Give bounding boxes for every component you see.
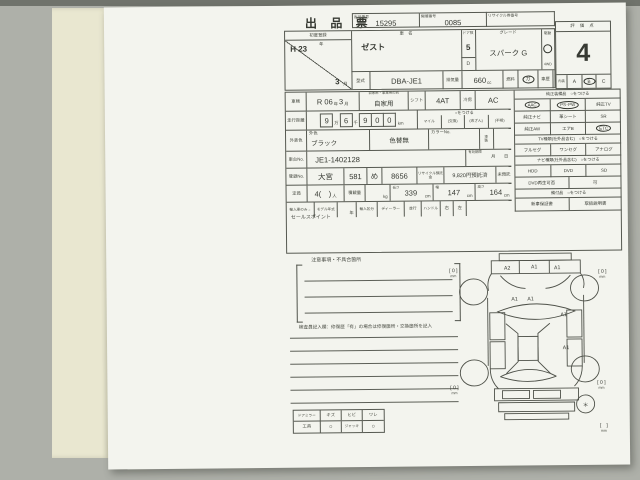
mirror-tools-table: ドアミラー キズ ヒビ ワレ 工具 ○ ジャッキ ○: [293, 409, 385, 434]
color-change-value: 色替無: [370, 129, 429, 150]
owner-manual: 取扱説明書: [569, 198, 622, 211]
registration-label: 登録No.: [286, 169, 307, 185]
color-row: 外装色 外色 ブラック 色替無 カラーNo. 塗装: [286, 129, 511, 152]
session-number-value: 0085: [420, 18, 486, 28]
interior-grade-row: 内装 A B C: [556, 74, 610, 89]
drive-cell: 駆動 4WD: [541, 29, 554, 69]
tire-rear-right: [571, 356, 599, 382]
capacity-label: 定員: [287, 186, 308, 202]
chassis-value: JE1-1402128: [307, 150, 466, 168]
crack-circle-mark: ○: [363, 421, 384, 432]
cooling-value: AC: [476, 91, 511, 109]
drive-label: 駆動: [541, 29, 554, 37]
tv-type-row: フルセグ ワンセグ アナログ: [515, 144, 621, 157]
fuel-value: ガ: [518, 70, 538, 88]
auction-form: 出 品 票 出品番号 15295 開催番号 0085 リサイクル券番号: [281, 9, 625, 464]
mirror-value-row: 工具 ○ ジャッキ ○: [294, 421, 384, 433]
shift-value: 4AT: [426, 91, 461, 109]
recycle-label: リサイクル預託金: [417, 167, 444, 183]
color-no-cell: カラーNo.: [429, 129, 480, 149]
chassis-row: 車台No. JE1-1402128 有効期限 月 日: [286, 150, 511, 169]
mirror-header-row: ドアミラー キズ ヒビ ワレ: [294, 410, 384, 422]
history-value: [553, 70, 554, 88]
car-name-cell: 車 名 ゼスト: [351, 30, 462, 71]
sales-point-row: セールスポイント: [287, 210, 621, 253]
interior-label: 内装: [556, 75, 567, 88]
score-box: 評 価 点 4 内装 A B C: [555, 21, 612, 90]
equip-etc-circled: ETC: [596, 125, 611, 132]
model-label: 型式: [351, 72, 370, 90]
side-page-edge: [52, 8, 110, 458]
displacement-value: 660 cc: [462, 71, 503, 89]
damage-mark: A2: [504, 266, 511, 272]
lot-number-label: 出品番号: [354, 14, 369, 19]
interior-grade-c: C: [597, 75, 611, 88]
inspector-line-4: [290, 375, 458, 378]
load-value: kg: [366, 185, 391, 201]
inspector-line-5: [290, 388, 458, 391]
score-label: 評 価 点: [556, 22, 610, 33]
equipment-row-3: 純正AW エアB ETC: [515, 123, 621, 136]
load-label: 積載量: [345, 185, 366, 201]
color-label: 外装色: [286, 131, 307, 151]
shift-label: シフト: [409, 91, 426, 109]
first-registration-cell: 初度登録 H 23 年 3 月: [285, 31, 353, 90]
drive-value: 4WD: [541, 60, 554, 69]
mileage-mark-cell: ○をつける マイル (交換) (改ざん) (不明): [418, 110, 511, 129]
chassis-expiry-cell: 有効期限 月 日: [466, 150, 511, 166]
equip-aac-circled: AAC: [525, 101, 540, 108]
recycle-value: 9,820円預託済: [444, 167, 496, 183]
door-front-left: [490, 313, 505, 340]
lot-number-box: 出品番号 15295: [352, 12, 420, 28]
tire-front-left: [459, 279, 487, 305]
drive-circle-icon: [541, 37, 554, 60]
damage-mark: A1: [531, 264, 538, 270]
shaken-label: 車検: [286, 93, 307, 111]
notes-label: 注意事項・不具合箇所: [311, 257, 361, 263]
notes-line-1: [304, 279, 452, 281]
damage-mark: A1: [563, 345, 570, 351]
details-table: 車検 R 06 年 3 月 自家用・事業用の別 自家用 シフト 4AT: [285, 89, 623, 254]
interior-grade-b: B: [582, 75, 597, 88]
session-number-label: 開催番号: [421, 14, 436, 19]
details-left: 車検 R 06 年 3 月 自家用・事業用の別 自家用 シフト 4AT: [286, 91, 512, 213]
tread-rear-right: [ 0 ] mm: [593, 380, 609, 390]
vehicle-summary-table: 初度登録 H 23 年 3 月 車 名 ゼスト ドア数 5: [284, 28, 556, 91]
interior-grade-a: A: [567, 75, 582, 88]
inspector-line-2: [290, 349, 458, 352]
equip-leather: 革シート: [550, 111, 586, 123]
dvd-value: 可: [569, 177, 622, 190]
usage-value: 自家用: [360, 96, 408, 111]
grade-value: スパーク G: [475, 36, 541, 70]
history-label: 車歴: [538, 70, 553, 88]
recycle-ticket-box: リサイクル券番号: [487, 11, 555, 27]
door-front-right: [567, 310, 582, 337]
door-count-value: 5: [461, 37, 475, 58]
color-value: ブラック: [307, 136, 369, 148]
paint-label: 塗装: [480, 129, 494, 149]
length-cell: 長さ 339 cm: [391, 184, 434, 200]
tread-front-right: [ 0 ] mm: [594, 269, 610, 279]
bracket-left: [296, 265, 303, 323]
color-no-label: カラーNo.: [429, 129, 479, 135]
capacity-row: 定員 4( ) 人 積載量 kg 長さ 339 cm: [287, 184, 512, 203]
model-row: 型式 DBA-JE1 排気量 660 cc 燃料 ガ 車歴: [351, 69, 554, 90]
color-cell: 外色 ブラック: [307, 130, 370, 151]
registration-number: 8656: [382, 168, 417, 184]
equipment-row-1: AAC PS･PW 純正TV: [515, 99, 621, 112]
first-registration-value: H 23 年 3 月: [285, 40, 351, 90]
width-cell: 幅 147 cm: [434, 184, 476, 200]
expiry-value: 月 日: [466, 155, 511, 160]
equip-navi: 純正ナビ: [515, 111, 551, 123]
displacement-label: 排気量: [443, 71, 462, 89]
fuel-label: 燃料: [503, 71, 518, 89]
door-rear-left: [490, 342, 505, 369]
tread-spare: [ ] mm: [596, 422, 612, 433]
equip-tv: 純正TV: [586, 99, 621, 111]
model-value: DBA-JE1: [370, 71, 443, 90]
scratch-circle-mark: ○: [321, 421, 342, 432]
mileage-row: 走行距離 9 万 6 千 9 0 0 km ○をつける: [286, 110, 511, 131]
warranty-book: 新車保証書: [516, 198, 570, 211]
equip-pspw-circled: PS･PW: [557, 100, 578, 108]
tread-rear-left: [ 0 ] mm: [446, 385, 462, 395]
shaken-row: 車検 R 06 年 3 月 自家用・事業用の別 自家用 シフト 4AT: [286, 91, 511, 112]
height-cell: 高さ 164 cm: [476, 184, 512, 200]
equip-sr: SR: [586, 111, 621, 123]
lot-number-value: 15295: [353, 18, 419, 28]
roof-panel: [518, 336, 538, 360]
registration-kana: め: [367, 168, 382, 184]
rear-lower-bar: [499, 402, 575, 412]
capacity-value: 4( ) 人: [308, 185, 345, 201]
docs-row: 新車保証書 取扱説明書: [516, 198, 622, 211]
inspector-line-6: [291, 401, 459, 404]
chassis-label: 車台No.: [286, 152, 307, 168]
usage-cell: 自家用・事業用の別 自家用: [360, 92, 409, 110]
header-number-boxes: 出品番号 15295 開催番号 0085 リサイクル券番号: [352, 11, 555, 28]
inspector-label: 検査員記入欄：修復歴「有」の場合は修復箇所・交換箇所を記入: [299, 323, 432, 330]
mileage-value: 9 万 6 千 9 0 0 km: [307, 111, 418, 130]
spare-tire-mark: ＊: [583, 402, 589, 409]
equipment-row-2: 純正ナビ 革シート SR: [515, 111, 621, 124]
inspector-line-1: [290, 336, 458, 339]
registration-area: 大宮: [307, 168, 344, 184]
equip-aw: 純正AW: [515, 123, 551, 135]
mileage-label: 走行距離: [286, 112, 307, 130]
tread-front-left: [ 0 ] mm: [445, 268, 461, 278]
damage-mark: A1: [511, 297, 518, 303]
registration-row: 登録No. 大宮 581 め 8656 リサイクル預託金 9,820円預託済 未…: [286, 167, 511, 186]
notes-line-2: [305, 295, 453, 297]
auction-sheet-paper: 出 品 票 出品番号 15295 開催番号 0085 リサイクル券番号: [104, 3, 630, 470]
dvd-label: DVD再生可否: [515, 177, 569, 190]
shaken-value: R 06 年 3 月: [307, 92, 360, 111]
notes-line-3: [305, 311, 453, 313]
registration-class: 581: [344, 168, 367, 184]
inspector-line-3: [290, 362, 458, 365]
score-value: 4: [556, 32, 610, 75]
auction-sheet-photo: 出 品 票 出品番号 15295 開催番号 0085 リサイクル券番号: [0, 0, 640, 480]
front-grille-bar: [499, 253, 571, 261]
equipment-panel: 純正装備品 ○をつける AAC PS･PW 純正TV 純正ナビ 革シート SR …: [514, 90, 622, 212]
damage-mark: A1: [554, 265, 561, 271]
notes-bracket-area: [296, 263, 461, 321]
recycle-ticket-label: リサイクル券番号: [488, 13, 518, 18]
cooling-label: 冷房: [461, 91, 476, 109]
session-number-box: 開催番号 0085: [420, 12, 487, 28]
door-rear-right: [567, 339, 582, 366]
equip-airbag: エアB: [551, 123, 587, 135]
recycle-none-option: 未預託: [496, 167, 511, 183]
damage-mark: A1: [560, 312, 567, 318]
fuel-circle-mark: ガ: [522, 75, 534, 83]
damage-mark: A1: [527, 296, 534, 302]
dvd-row: DVD再生可否 可: [515, 177, 621, 190]
mileage-mark-options: マイル (交換) (改ざん) (不明): [418, 115, 511, 129]
car-name-value: ゼスト: [351, 37, 461, 53]
navi-type-row: HDD DVD SD: [515, 165, 621, 178]
tire-rear-left: [460, 360, 488, 386]
paint-value: [494, 129, 511, 149]
door-sub-value: D: [461, 58, 475, 70]
grade-cell: グレード スパーク G: [475, 29, 542, 70]
